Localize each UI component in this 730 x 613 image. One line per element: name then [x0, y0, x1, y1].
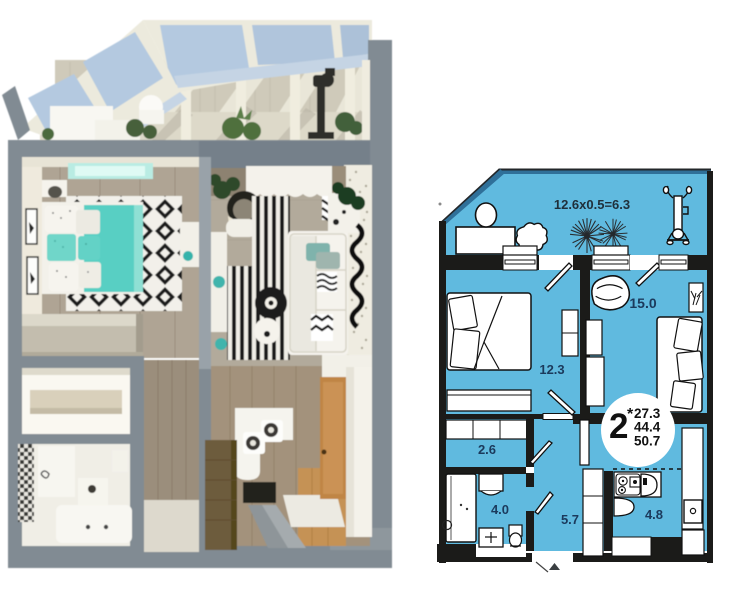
svg-text:2: 2	[609, 407, 628, 446]
svg-text:4.0: 4.0	[491, 502, 509, 517]
svg-text:4.8: 4.8	[645, 507, 663, 522]
svg-text:12.6x0.5=6.3: 12.6x0.5=6.3	[554, 197, 630, 212]
svg-text:2.6: 2.6	[478, 442, 496, 457]
svg-text:5.7: 5.7	[561, 512, 579, 527]
svg-text:*: *	[627, 406, 634, 423]
svg-text:12.3: 12.3	[539, 362, 564, 377]
svg-text:15.0: 15.0	[629, 295, 656, 311]
svg-text:44.4: 44.4	[634, 420, 661, 435]
svg-text:50.7: 50.7	[634, 434, 660, 449]
